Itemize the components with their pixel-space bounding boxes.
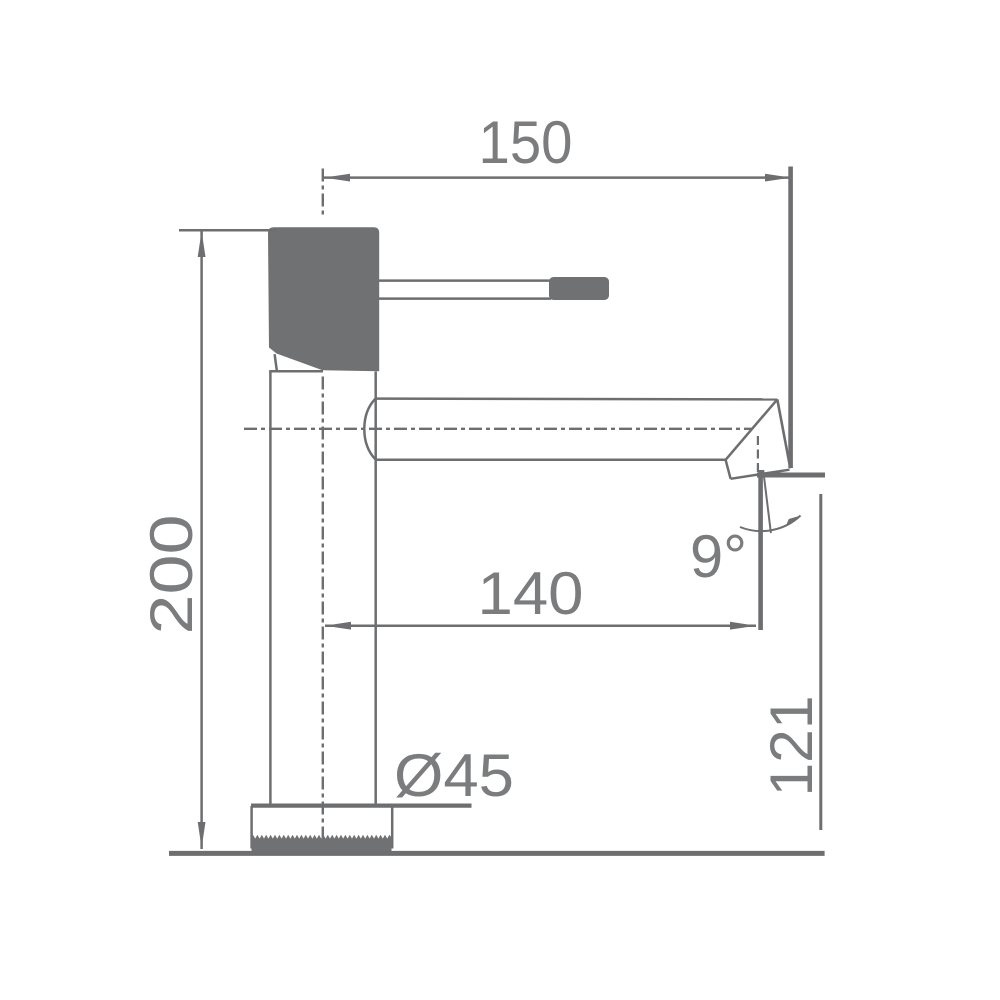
svg-text:140: 140 xyxy=(478,560,584,627)
svg-text:121: 121 xyxy=(758,696,825,797)
svg-text:9°: 9° xyxy=(690,523,747,590)
svg-text:150: 150 xyxy=(479,109,573,176)
svg-text:Ø45: Ø45 xyxy=(394,742,514,809)
svg-text:200: 200 xyxy=(138,515,205,635)
